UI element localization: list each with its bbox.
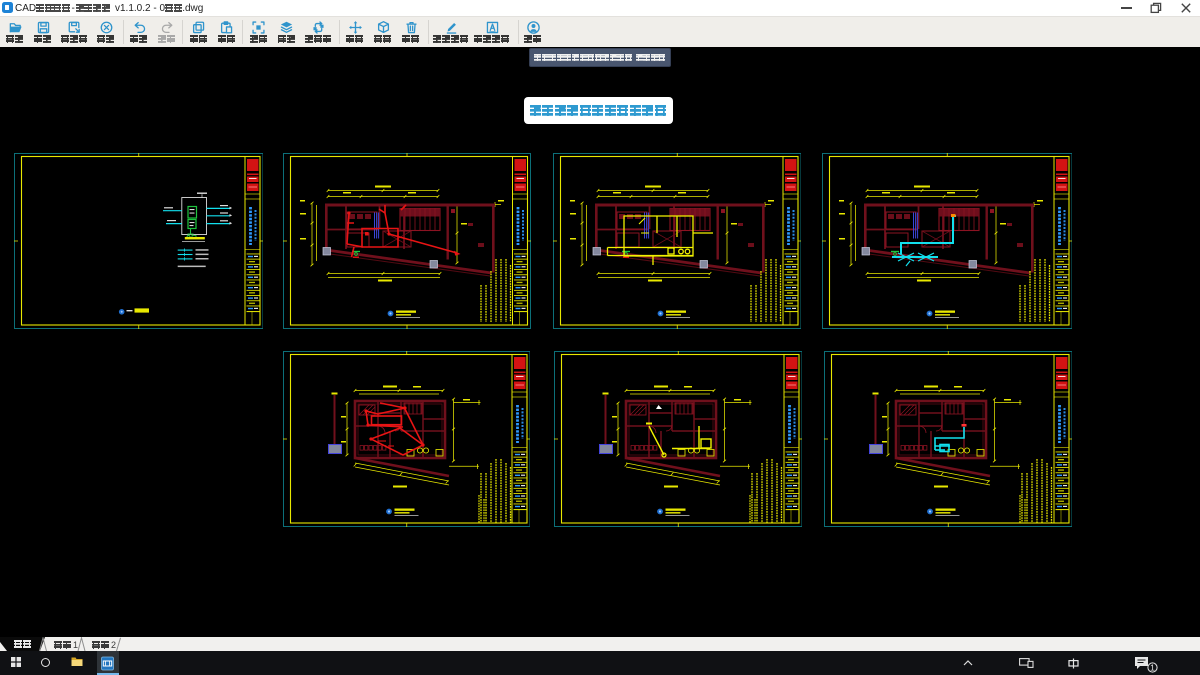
svg-text:1: 1 bbox=[1150, 663, 1155, 673]
